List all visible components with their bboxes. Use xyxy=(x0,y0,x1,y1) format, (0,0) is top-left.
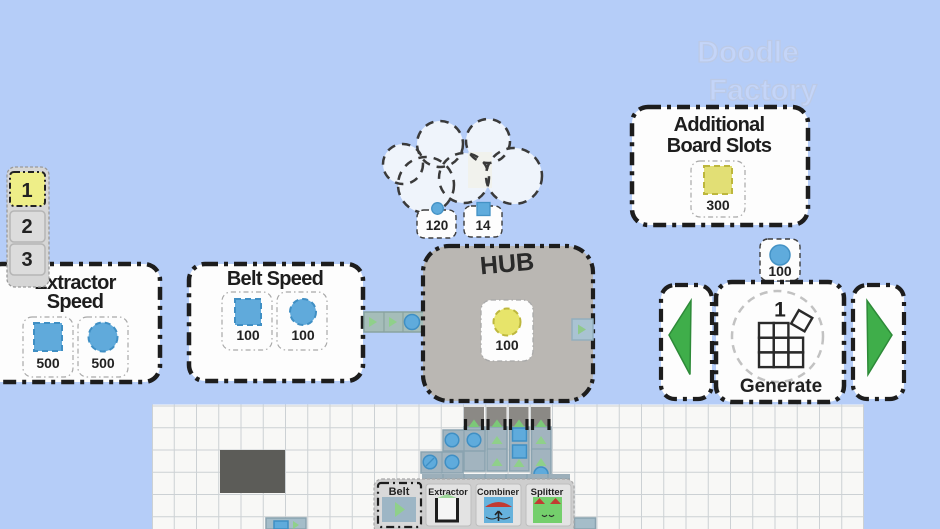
svg-text:Splitter: Splitter xyxy=(531,487,564,498)
svg-text:100: 100 xyxy=(495,337,519,353)
svg-text:1: 1 xyxy=(774,299,786,322)
svg-text:14: 14 xyxy=(475,218,491,233)
svg-text:HUB: HUB xyxy=(479,248,535,281)
svg-text:Doodle: Doodle xyxy=(697,36,799,69)
svg-text:100: 100 xyxy=(291,327,315,343)
svg-text:100: 100 xyxy=(768,263,792,279)
svg-text:500: 500 xyxy=(91,355,115,371)
svg-text:Board Slots: Board Slots xyxy=(667,135,772,157)
svg-text:300: 300 xyxy=(706,197,730,213)
svg-text:3: 3 xyxy=(21,249,32,271)
svg-text:Generate: Generate xyxy=(740,376,822,397)
svg-text:1: 1 xyxy=(21,180,32,202)
svg-text:Belt Speed: Belt Speed xyxy=(227,268,323,290)
svg-text:Belt: Belt xyxy=(389,486,410,498)
svg-text:500: 500 xyxy=(36,355,60,371)
svg-text:100: 100 xyxy=(236,327,260,343)
svg-text:Speed: Speed xyxy=(47,291,104,313)
svg-text:120: 120 xyxy=(426,218,449,233)
svg-text:Additional: Additional xyxy=(674,114,765,136)
svg-text:2: 2 xyxy=(21,216,32,238)
svg-text:Combiner: Combiner xyxy=(477,487,520,497)
svg-text:Factory: Factory xyxy=(709,74,818,107)
